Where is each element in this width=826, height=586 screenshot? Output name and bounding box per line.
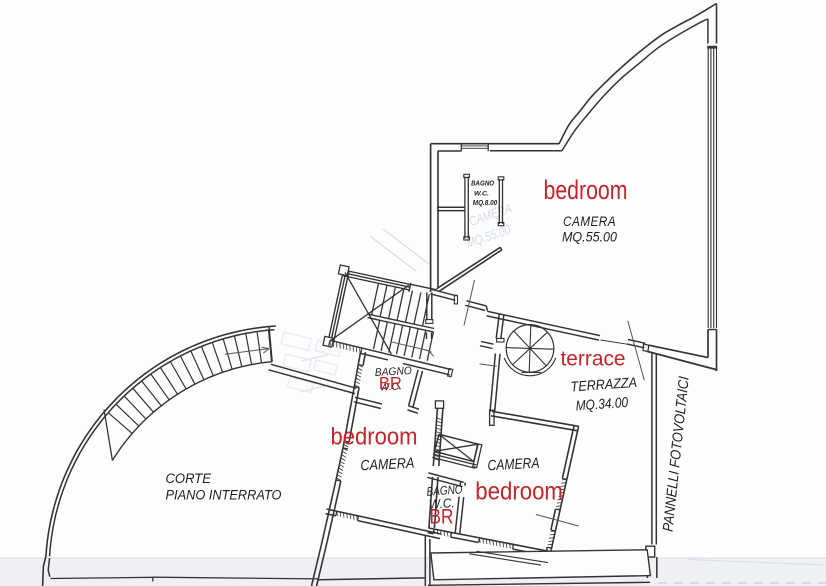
- svg-text:W.C.: W.C.: [474, 190, 489, 197]
- svg-text:MQ.55.00: MQ.55.00: [562, 230, 617, 246]
- svg-text:CAMERA: CAMERA: [360, 456, 415, 475]
- svg-text:BR: BR: [379, 373, 402, 393]
- svg-text:PIANO INTERRATO: PIANO INTERRATO: [166, 487, 282, 503]
- svg-text:MQ.8.00: MQ.8.00: [473, 200, 498, 207]
- svg-text:CAMERA: CAMERA: [563, 214, 616, 230]
- svg-text:bedroom: bedroom: [331, 424, 418, 451]
- svg-text:terrace: terrace: [561, 348, 626, 371]
- svg-text:bedroom: bedroom: [475, 478, 563, 506]
- svg-text:CORTE: CORTE: [166, 471, 212, 487]
- svg-text:BR: BR: [430, 505, 454, 529]
- svg-text:CAMERA: CAMERA: [487, 456, 540, 475]
- svg-text:bedroom: bedroom: [544, 175, 628, 205]
- svg-text:BAGNO: BAGNO: [471, 180, 494, 187]
